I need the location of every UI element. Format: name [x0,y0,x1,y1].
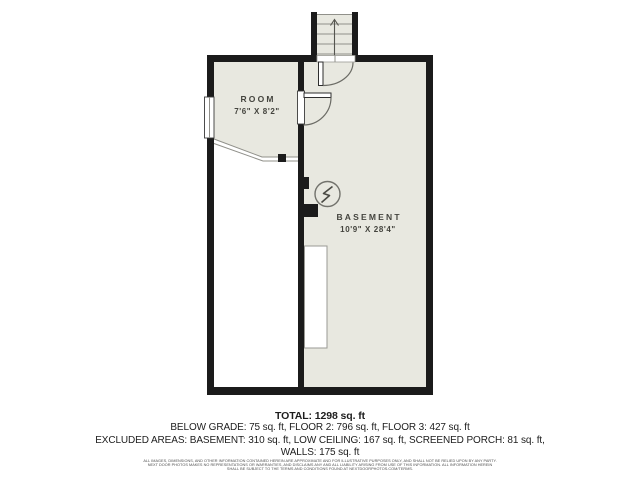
stairwell-right-wall [352,12,358,62]
room-label: ROOM 7'6" X 8'2" [212,95,302,116]
excluded-areas-line: EXCLUDED AREAS: BASEMENT: 310 sq. ft, LO… [0,435,640,447]
disclaimer: ALL IMAGES, DIMENSIONS, AND OTHER INFORM… [0,459,640,475]
below-grade-line: BELOW GRADE: 75 sq. ft, FLOOR 2: 796 sq.… [0,422,640,434]
column-post [278,154,286,162]
stair-door-leaf [319,62,324,86]
room-door-leaf [304,93,331,98]
floorplan-page: ROOM 7'6" X 8'2" BASEMENT 10'9" X 28'4" … [0,0,640,480]
excluded-area-cutout [305,246,328,348]
basement-name: BASEMENT [323,213,413,222]
basement-label: BASEMENT 10'9" X 28'4" [323,213,413,234]
room-name: ROOM [212,95,302,104]
basement-dimensions: 10'9" X 28'4" [323,226,413,234]
stairwell-left-wall [311,12,317,62]
total-area: TOTAL: 1298 sq. ft [0,410,640,422]
area-summary: TOTAL: 1298 sq. ft BELOW GRADE: 75 sq. f… [0,410,640,460]
room-dimensions: 7'6" X 8'2" [212,108,302,116]
electrical-panel-icon [315,182,340,207]
disclaimer-line-3: SHALL BE SUBJECT TO THE TERMS AND CONDIT… [0,467,640,471]
floorplan-drawing [0,0,640,480]
stair-door-threshold [317,56,355,63]
